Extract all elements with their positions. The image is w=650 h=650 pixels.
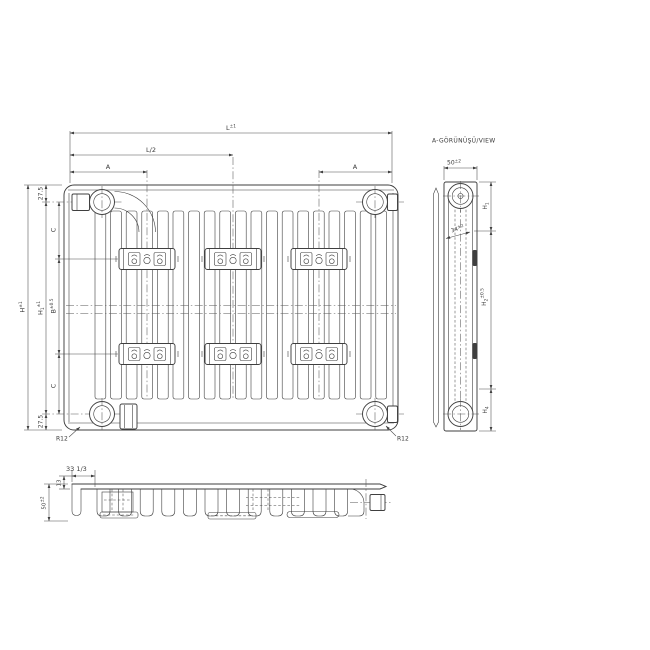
radius-label-left: R12 <box>56 436 68 443</box>
dim-label-h1: H1 <box>482 202 491 210</box>
dim-h-tol: ±1 <box>18 301 24 308</box>
mounting-bracket <box>288 344 350 365</box>
mounting-bracket <box>116 249 178 270</box>
dim-label-depth: 50±2 <box>447 158 461 166</box>
side-bracket-clip-bottom <box>473 343 478 359</box>
dim-label-fin-pitch: 33 1/3 <box>66 465 87 473</box>
dim-label-a-left: A <box>106 163 111 171</box>
front-view: L±1 L/2 A A H±1 27.5 H1±1 27.5 C B±0.5 C… <box>18 124 409 443</box>
plug-top-left <box>72 194 90 211</box>
bottom-right-connection <box>348 479 392 519</box>
side-bracket-clip-top <box>473 250 478 266</box>
dim-label-c-bottom: C <box>50 383 58 388</box>
dim-h1-tol: ±1 <box>36 301 42 308</box>
front-dimensions: L±1 L/2 A A H±1 27.5 H1±1 27.5 C B±0.5 C… <box>18 124 409 443</box>
dim-label-length: L±1 <box>226 124 236 132</box>
technical-drawing-sheet: L±1 L/2 A A H±1 27.5 H1±1 27.5 C B±0.5 C… <box>0 0 650 650</box>
dim-label-top-offset: 27.5 <box>38 187 45 201</box>
dim-sh4-sub: 4 <box>485 406 491 409</box>
stub-bottom-left <box>120 404 137 429</box>
dim-depth-tol: ±2 <box>455 158 462 164</box>
side-view: A-GÖRÜNÜŞÜ/VIEW 50±2 34±2 <box>432 138 496 432</box>
plug-bottom-right <box>388 406 398 423</box>
radiator-technical-drawing: L±1 L/2 A A H±1 27.5 H1±1 27.5 C B±0.5 C… <box>0 0 650 650</box>
mounting-bracket <box>202 344 264 365</box>
dim-b-tol: ±0.5 <box>49 298 55 309</box>
side-view-title: A-GÖRÜNÜŞÜ/VIEW <box>432 138 496 145</box>
dim-label-total-depth: 50±2 <box>40 496 48 510</box>
dim-td-tol: ±2 <box>40 496 46 503</box>
dim-label-h4: H4 <box>482 406 491 414</box>
dim-label-panel-depth: 13 <box>57 479 63 486</box>
dim-label-c-top: C <box>50 227 58 232</box>
front-connection-hubs <box>72 186 398 430</box>
dim-depth-base: 50 <box>447 160 455 167</box>
dim-label-height-connections: H1±1 <box>36 301 46 315</box>
mounting-bracket <box>288 249 350 270</box>
plug-top-right <box>388 194 398 211</box>
dim-label-half-length: L/2 <box>146 146 156 154</box>
bottom-plug <box>370 495 385 511</box>
dim-length-tol: ±1 <box>230 124 237 130</box>
bottom-dimensions: 33 1/3 13 50±2 <box>40 465 96 521</box>
dim-sh2-tol: ±0.5 <box>480 288 486 299</box>
dim-label-h2: H2±0.5 <box>480 288 490 306</box>
dim-sh1-sub: 1 <box>485 202 491 205</box>
radius-label-right: R12 <box>397 436 409 443</box>
bottom-view: 33 1/3 13 50±2 <box>40 465 393 521</box>
mounting-bracket <box>202 249 264 270</box>
dim-label-a-right: A <box>353 163 358 171</box>
dim-label-bracket-spacing: B±0.5 <box>49 298 57 313</box>
mounting-bracket <box>116 344 178 365</box>
dim-label-bottom-offset: 27.5 <box>38 415 45 429</box>
dim-label-height-overall: H±1 <box>18 301 26 312</box>
front-fins <box>95 211 387 399</box>
side-body <box>434 181 480 431</box>
front-panel-outline <box>64 185 398 430</box>
side-fin-edge <box>434 188 439 427</box>
